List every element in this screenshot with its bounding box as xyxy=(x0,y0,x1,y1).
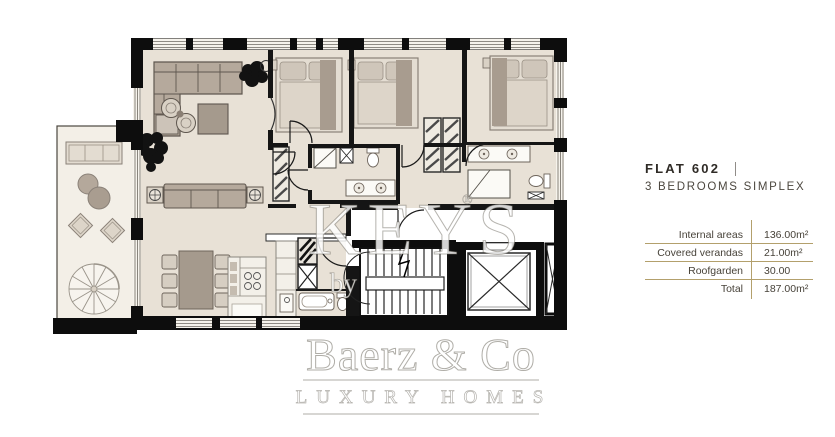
table-row: Total 187.00m² xyxy=(645,280,813,297)
watermark-tagline: LUXURY HOMES xyxy=(296,387,553,408)
area-label: Roofgarden xyxy=(645,265,751,277)
watermark-company: Baerz & Co xyxy=(306,329,536,380)
area-value: 21.00m² xyxy=(751,247,803,259)
flat-subtitle: 3 BEDROOMS SIMPLEX xyxy=(645,181,817,193)
spiral-staircase-icon xyxy=(69,264,119,314)
shower-icon xyxy=(314,148,336,168)
coffee-table-icon xyxy=(198,104,228,134)
table-vertical-rule xyxy=(751,220,752,299)
area-value: 30.00 xyxy=(751,265,790,277)
table-row: Covered verandas 21.00m² xyxy=(645,244,813,262)
area-label: Total xyxy=(645,283,751,295)
area-label: Covered verandas xyxy=(645,247,751,259)
flat-title: FLAT 602 | xyxy=(645,160,817,177)
watermark-keys: KEYS xyxy=(308,189,525,271)
area-value: 136.00m² xyxy=(751,229,808,241)
area-value: 187.00m² xyxy=(751,283,808,295)
area-table: Internal areas 136.00m² Covered verandas… xyxy=(645,226,813,297)
area-label: Internal areas xyxy=(645,229,751,241)
bed-icon xyxy=(348,58,418,128)
bed-icon xyxy=(483,56,553,130)
flat-info-panel: FLAT 602 | 3 BEDROOMS SIMPLEX Internal a… xyxy=(645,160,817,297)
title-separator: | xyxy=(734,160,738,177)
sofa-icon xyxy=(147,184,263,208)
sink-vanity-icon xyxy=(468,146,530,162)
toilet-icon xyxy=(367,148,379,167)
watermark-by: by xyxy=(330,268,358,298)
dining-table-icon xyxy=(162,251,230,309)
bed-icon xyxy=(270,58,342,132)
floorplan-page: KEYS ® by Baerz & Co LUXURY HOMES FLAT 6… xyxy=(0,0,835,437)
outdoor-sofa-icon xyxy=(66,142,122,164)
table-row: Internal areas 136.00m² xyxy=(645,226,813,244)
flat-name: FLAT 602 xyxy=(645,161,720,176)
table-row: Roofgarden 30.00 xyxy=(645,262,813,280)
watermark-reg: ® xyxy=(462,193,473,208)
terrace xyxy=(53,120,143,334)
